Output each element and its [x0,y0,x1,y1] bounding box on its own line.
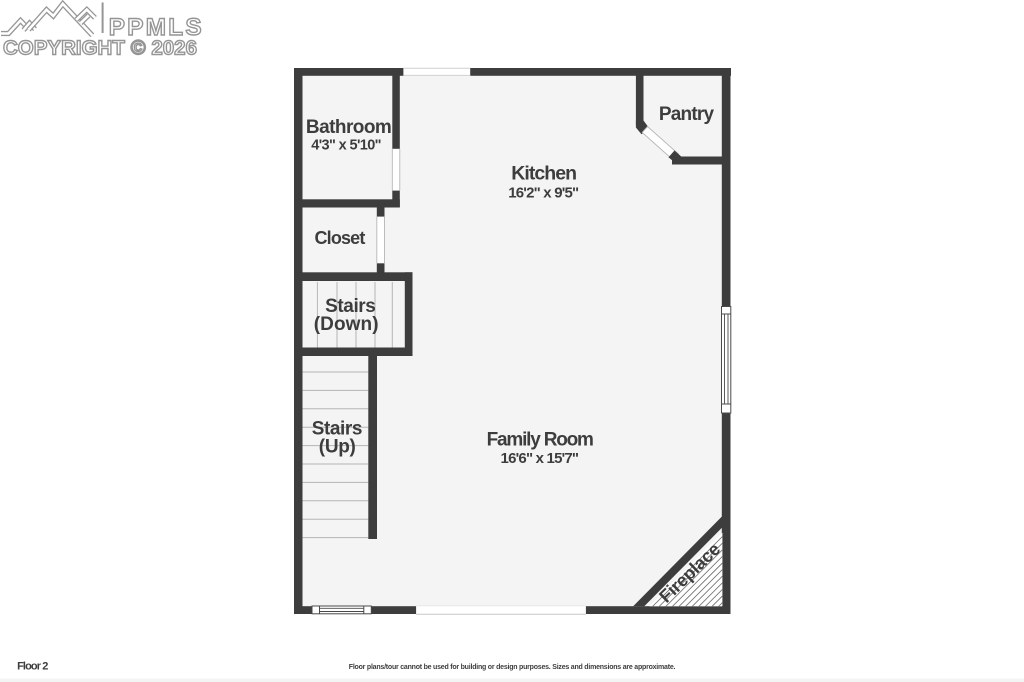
svg-text:Bathroom: Bathroom [306,117,391,138]
svg-text:Floor 2: Floor 2 [17,660,48,672]
svg-text:(Down): (Down) [314,314,379,335]
svg-text:Kitchen: Kitchen [511,163,576,185]
svg-text:4'3" x 5'10": 4'3" x 5'10" [311,138,381,154]
svg-text:16'2" x 9'5": 16'2" x 9'5" [508,184,579,201]
svg-text:Closet: Closet [314,228,365,248]
svg-text:16'6" x 15'7": 16'6" x 15'7" [501,450,579,467]
svg-text:(Up): (Up) [319,436,356,457]
svg-text:COPYRIGHT © 2026: COPYRIGHT © 2026 [3,36,197,59]
svg-text:Pantry: Pantry [659,104,715,125]
svg-text:Family Room: Family Room [487,429,593,450]
svg-text:Floor plans/tour cannot be use: Floor plans/tour cannot be used for buil… [349,664,676,671]
